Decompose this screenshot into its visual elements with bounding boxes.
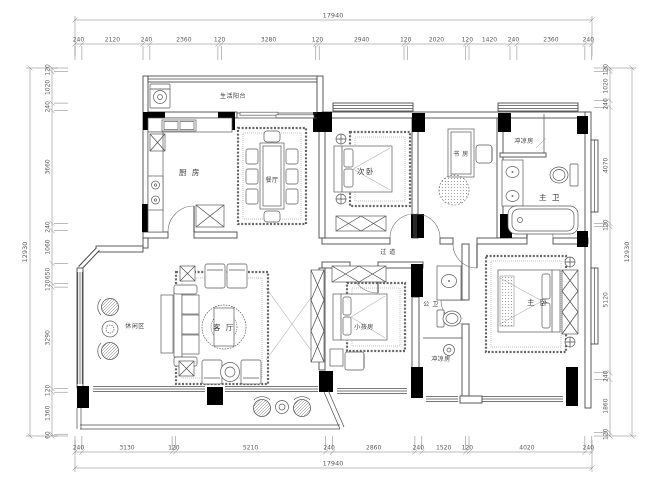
dim-label-bottom-7: 1520 xyxy=(436,445,451,452)
dim-right-total: 12930 xyxy=(623,242,631,263)
dim-left-total: 12930 xyxy=(21,242,29,263)
dim-chain-top: 2402120240236012032801202940120202012014… xyxy=(73,37,595,61)
room-label-study: 书 房 xyxy=(453,150,468,158)
dim-label-right-4: 120 xyxy=(603,219,610,231)
room-label-service-balcony: 生活阳台 xyxy=(220,92,246,100)
dim-label-left-3: 3660 xyxy=(45,159,52,174)
room-label-corridor: 过 道 xyxy=(380,248,395,256)
dim-label-top-3: 2360 xyxy=(176,37,191,44)
room-label-living: 客 厅 xyxy=(213,322,235,332)
dim-label-bottom-1: 3130 xyxy=(119,445,134,452)
room-label-kitchen: 厨 房 xyxy=(179,167,201,177)
dim-label-right-8: 120 xyxy=(603,428,610,440)
dim-label-bottom-2: 120 xyxy=(168,445,180,452)
dim-label-top-12: 240 xyxy=(508,37,520,44)
dim-label-top-7: 2940 xyxy=(354,37,369,44)
furniture-leisure-area xyxy=(98,299,119,360)
room-label-kids-room: 小孩房 xyxy=(354,323,374,331)
room-label-second-bedroom: 次卧 xyxy=(357,166,375,176)
dim-label-bottom-3: 5210 xyxy=(243,445,258,452)
dim-label-top-14: 240 xyxy=(583,37,595,44)
dim-label-right-6: 240 xyxy=(603,370,610,382)
dim-label-left-6: 650 xyxy=(45,267,52,279)
dim-label-top-0: 240 xyxy=(73,37,85,44)
dim-label-top-13: 2360 xyxy=(543,37,558,44)
furniture-study xyxy=(439,129,492,205)
floor-plan-drawing: 17940 17940 12930 12930 2402120240236012… xyxy=(0,0,670,502)
dim-label-left-7: 120 xyxy=(45,279,52,291)
dim-label-top-6: 120 xyxy=(312,37,324,44)
dim-label-top-10: 120 xyxy=(462,37,474,44)
dim-label-bottom-0: 240 xyxy=(73,445,85,452)
dim-label-right-2: 240 xyxy=(603,98,610,110)
dim-label-bottom-8: 120 xyxy=(462,445,474,452)
furniture-service-balcony xyxy=(150,84,170,108)
room-label-leisure: 休闲区 xyxy=(125,322,145,330)
room-label-master-bedroom: 主 卧 xyxy=(527,297,549,307)
dim-label-top-2: 240 xyxy=(141,37,153,44)
room-label-shower-top: 冲凉房 xyxy=(514,137,534,145)
dim-label-top-4: 120 xyxy=(214,37,226,44)
dim-label-left-0: 120 xyxy=(45,64,52,76)
dim-bottom-total: 17940 xyxy=(323,460,344,468)
dim-label-left-4: 240 xyxy=(45,221,52,233)
dim-chain-right: 1201020240407012051202401860120 xyxy=(594,64,613,440)
dim-label-left-9: 120 xyxy=(45,384,52,396)
furniture-kids-room xyxy=(330,266,405,370)
dim-label-left-11: 60 xyxy=(45,431,52,439)
dim-label-left-10: 1360 xyxy=(45,405,52,420)
room-label-shower-bottom: 冲凉房 xyxy=(431,355,451,363)
dim-label-top-9: 2020 xyxy=(429,37,444,44)
dim-label-right-5: 5120 xyxy=(603,292,610,307)
furniture-living-room xyxy=(161,264,324,384)
dim-label-left-8: 3290 xyxy=(45,330,52,345)
dim-label-left-2: 240 xyxy=(45,101,52,113)
dim-label-bottom-4: 240 xyxy=(323,445,335,452)
dim-label-top-8: 120 xyxy=(400,37,412,44)
dim-label-bottom-6: 240 xyxy=(413,445,425,452)
dim-label-bottom-10: 240 xyxy=(583,445,595,452)
room-label-dining: 餐厅 xyxy=(265,176,278,184)
dim-label-top-11: 1420 xyxy=(482,37,497,44)
furniture-master-bath xyxy=(502,138,578,234)
furniture-guest-bath xyxy=(437,266,461,356)
dim-label-left-5: 1060 xyxy=(45,239,52,254)
room-label-guest-bath: 公 卫 xyxy=(423,301,438,308)
dim-label-bottom-5: 2860 xyxy=(366,445,381,452)
furniture-second-bedroom xyxy=(334,132,410,231)
furniture-dining xyxy=(238,128,306,224)
dim-label-right-7: 1860 xyxy=(603,398,610,413)
dim-chain-left: 1201020240366024010606501203290120136060 xyxy=(45,64,69,439)
dim-label-left-1: 1020 xyxy=(45,80,52,95)
dim-chain-bottom: 24031301205210240286024015201204020240 xyxy=(73,436,595,455)
dim-label-right-1: 1020 xyxy=(603,78,610,93)
dim-top-total: 17940 xyxy=(323,12,344,20)
dim-label-right-0: 120 xyxy=(603,64,610,76)
dim-label-top-5: 3280 xyxy=(261,37,276,44)
dim-label-top-1: 2120 xyxy=(105,37,120,44)
dim-label-bottom-9: 4020 xyxy=(519,445,534,452)
dim-label-right-3: 4070 xyxy=(603,158,610,173)
room-label-master-bath: 主 卫 xyxy=(539,192,561,202)
floor-plan-canvas: 17940 17940 12930 12930 2402120240236012… xyxy=(0,0,670,502)
furniture-balcony xyxy=(254,397,311,417)
